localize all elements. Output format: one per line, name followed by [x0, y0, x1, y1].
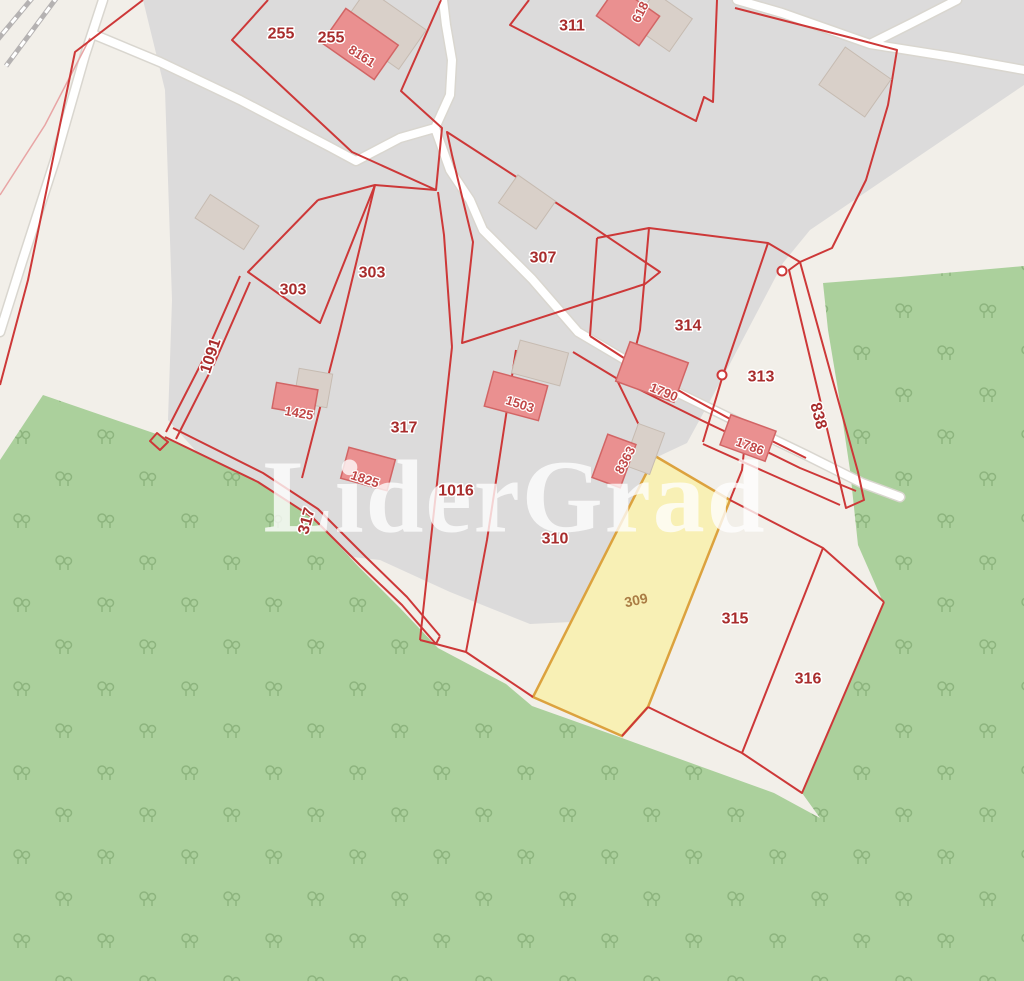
- parcel-label-317a: 317: [391, 420, 418, 437]
- parcel-label-310: 310: [542, 531, 569, 548]
- vertex-circle-icon: [718, 371, 727, 380]
- parcel-label-315: 315: [722, 611, 749, 628]
- parcel-label-307: 307: [530, 250, 557, 267]
- parcel-label-255b: 255: [318, 30, 345, 47]
- parcel-label-314: 314: [675, 318, 702, 335]
- parcel-label-313: 313: [748, 369, 775, 386]
- parcel-label-1016: 1016: [438, 483, 474, 500]
- map-canvas[interactable]: LiderGrad 255 255 311 303 303 307 314 31…: [0, 0, 1024, 981]
- parcel-label-316: 316: [795, 671, 822, 688]
- parcel-label-311: 311: [559, 18, 585, 35]
- parcel-label-303a: 303: [280, 282, 307, 299]
- parcel-label-255a: 255: [268, 26, 295, 43]
- watermark: LiderGrad: [263, 440, 766, 555]
- vertex-circle-icon: [778, 267, 787, 276]
- parcel-label-303b: 303: [359, 265, 386, 282]
